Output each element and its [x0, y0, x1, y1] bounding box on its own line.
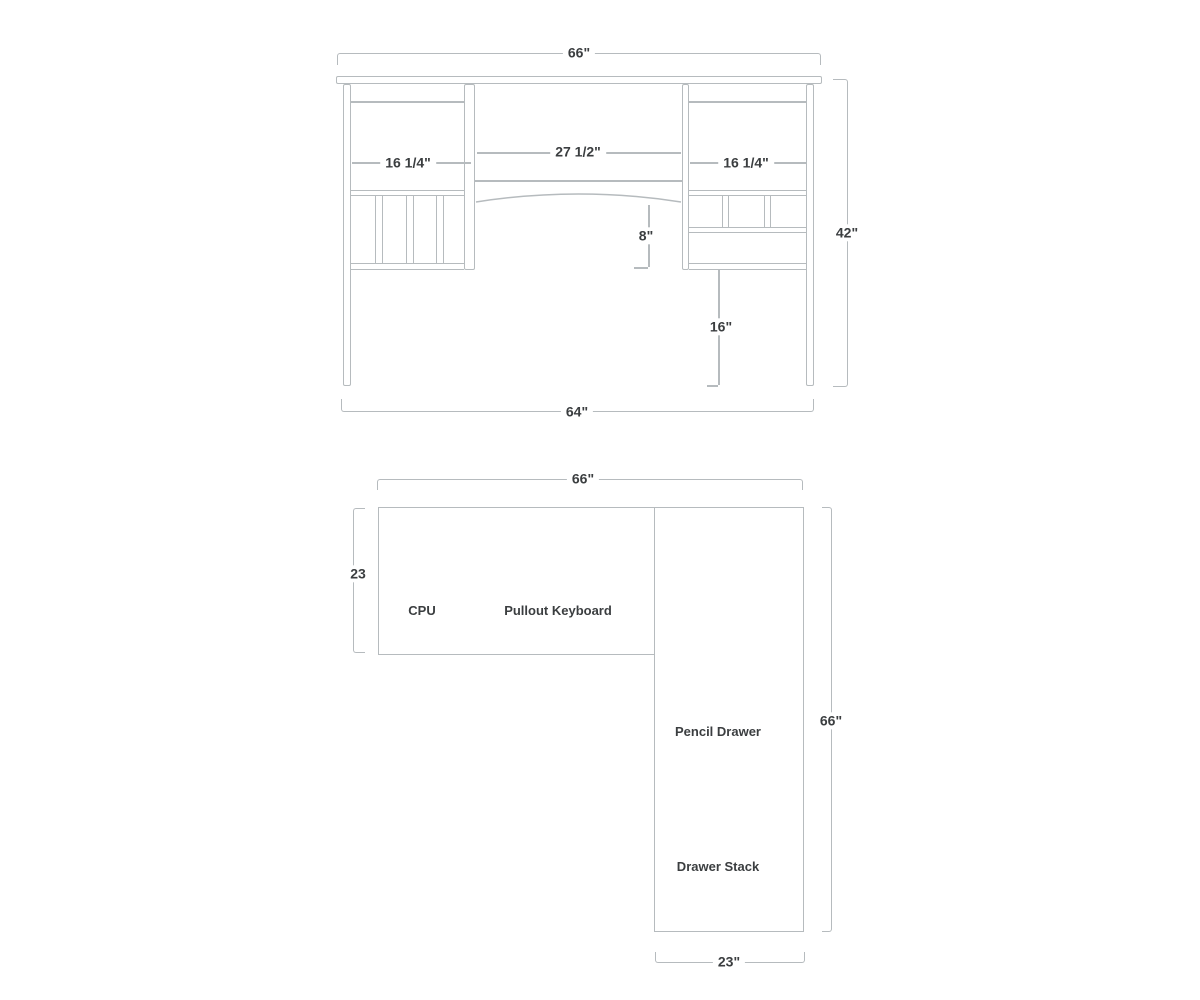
plan-dim-label-top-width: 66" — [567, 470, 599, 487]
plan-main-surface — [378, 507, 655, 655]
apron-dim-tick — [634, 267, 648, 269]
dim-label-overall-height: 42" — [831, 224, 863, 241]
left-pedestal-top-rail — [351, 101, 464, 103]
left-end-panel — [343, 84, 351, 386]
desk-top — [336, 76, 822, 84]
left-slot-divider-1 — [375, 196, 383, 263]
plan-label-pullout-keyboard: Pullout Keyboard — [504, 604, 612, 618]
left-slot-divider-3 — [436, 196, 444, 263]
plan-dim-label-return-depth: 23" — [713, 953, 745, 970]
arched-apron — [475, 185, 682, 205]
dim-label-knee-height: 16" — [705, 318, 737, 335]
right-end-panel — [806, 84, 814, 386]
right-slot-divider-2 — [764, 196, 771, 228]
dim-label-left-opening: 16 1/4" — [380, 154, 436, 171]
knee-dim-tick — [707, 385, 718, 387]
left-slot-divider-2 — [406, 196, 414, 263]
plan-dim-label-return-length: 66" — [815, 712, 847, 729]
plan-label-drawer-stack: Drawer Stack — [677, 860, 759, 874]
dim-label-center-opening: 27 1/2" — [550, 143, 606, 160]
right-slot-divider-1 — [722, 196, 729, 228]
dim-label-right-opening: 16 1/4" — [718, 154, 774, 171]
left-pedestal-bottom-shelf — [351, 263, 464, 270]
right-cubby-shelf — [689, 190, 806, 196]
plan-label-cpu: CPU — [408, 604, 435, 618]
right-pedestal-top-rail — [689, 101, 806, 103]
right-pedestal-partition — [682, 84, 689, 270]
center-rail — [475, 180, 682, 182]
plan-dim-label-main-depth: 23 — [345, 565, 371, 582]
dim-label-base-width: 64" — [561, 403, 593, 420]
left-pedestal-partition — [464, 84, 475, 270]
right-pedestal-bottom-shelf — [689, 263, 806, 270]
dim-label-apron-height: 8" — [634, 227, 658, 244]
dim-label-top-width: 66" — [563, 44, 595, 61]
right-middle-shelf — [689, 227, 806, 233]
drawing-canvas: 66" 16 1/4" 16 1/4" 27 1/2" — [0, 0, 1200, 1000]
plan-label-pencil-drawer: Pencil Drawer — [675, 725, 761, 739]
